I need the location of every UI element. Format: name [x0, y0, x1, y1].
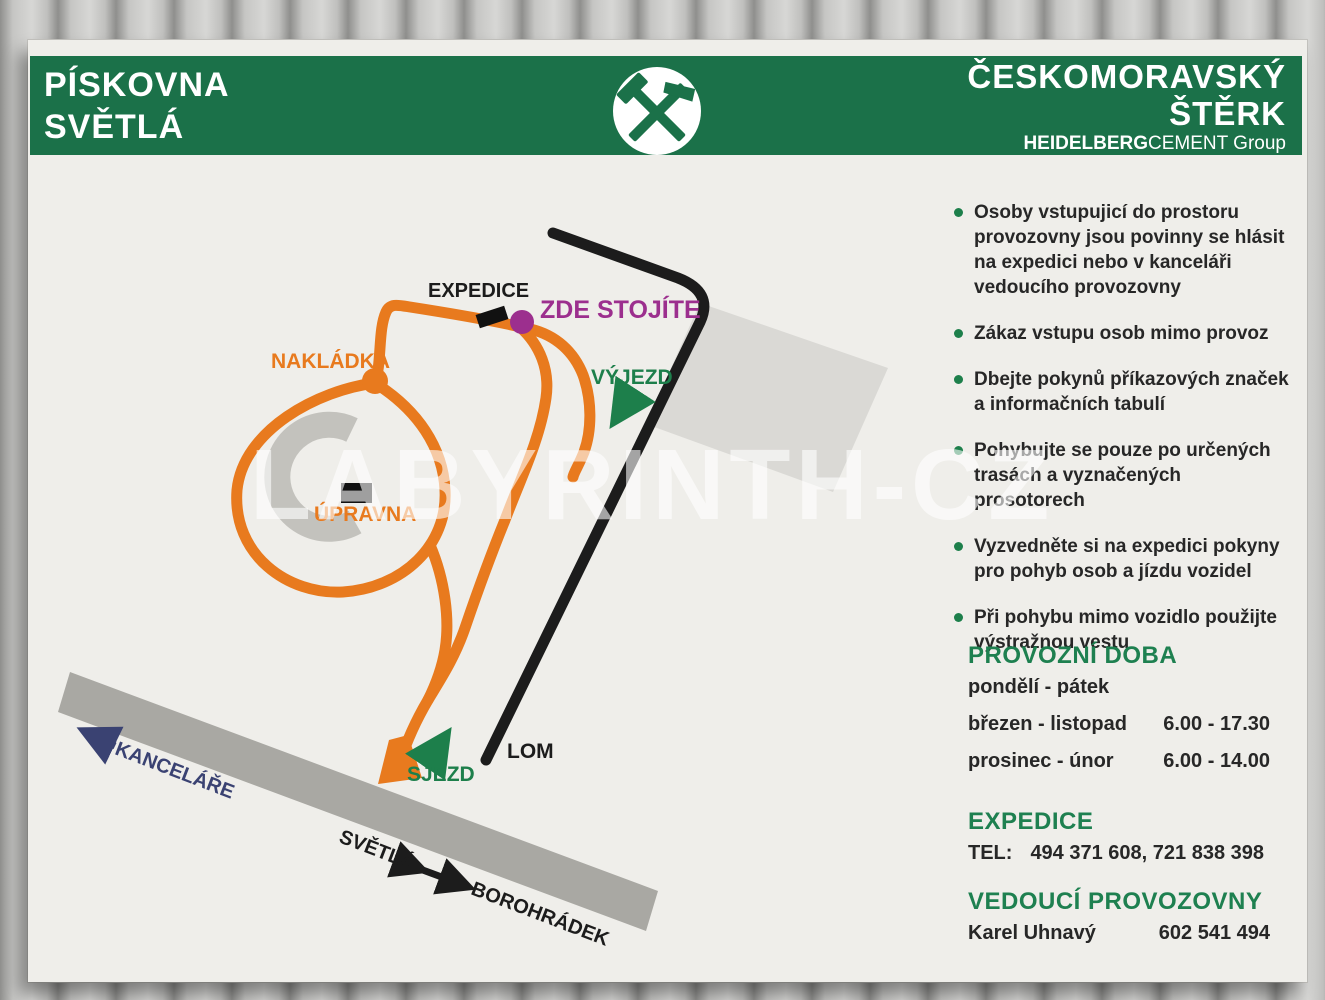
hours-row: březen - listopad 6.00 - 17.30 [968, 713, 1270, 736]
hours-time: 6.00 - 17.30 [1163, 713, 1270, 736]
label-sjezd: SJEZD [407, 763, 475, 787]
you-are-here-dot [510, 310, 534, 334]
upravna-marker [341, 483, 372, 503]
manager-title: VEDOUCÍ PROVOZOVNY [968, 888, 1288, 916]
label-zde-stojite: ZDE STOJÍTE [540, 296, 701, 325]
sign-panel: PÍSKOVNA SVĚTLÁ ČESKOMORAVSKÝ [28, 40, 1307, 982]
expedice-exit-road [375, 305, 590, 477]
direction-double-arrow-icon [420, 869, 466, 886]
hours-time: 6.00 - 14.00 [1163, 750, 1270, 773]
manager-phone: 602 541 494 [1159, 922, 1270, 945]
hours-row: prosinec - únor 6.00 - 14.00 [968, 750, 1270, 773]
manager-contact: Karel Uhnavý 602 541 494 [968, 922, 1270, 945]
through-road [398, 327, 547, 768]
expedice-phones: TEL:494 371 608, 721 838 398 [968, 842, 1288, 865]
manager-name: Karel Uhnavý [968, 922, 1096, 945]
kancelare-arrow-icon [86, 732, 115, 746]
label-vyjezd: VÝJEZD [591, 366, 673, 390]
hours-period: březen - listopad [968, 713, 1127, 736]
opening-hours-days: pondělí - pátek [968, 676, 1288, 699]
expedice-contact-section: EXPEDICE TEL:494 371 608, 721 838 398 [968, 808, 1288, 865]
label-expedice: EXPEDICE [428, 280, 529, 303]
rules-list: Osoby vstupujicí do prostoru provozovny … [952, 200, 1297, 655]
rule-item: Dbejte pokynů příkazových značek a infor… [952, 367, 1297, 417]
vyjezd-arrow-icon [616, 396, 631, 419]
building-area [646, 303, 888, 492]
opening-hours-section: PROVOZNÍ DOBA pondělí - pátek březen - l… [968, 642, 1288, 773]
expedice-title: EXPEDICE [968, 808, 1288, 836]
tel-numbers: 494 371 608, 721 838 398 [1030, 842, 1264, 864]
manager-section: VEDOUCÍ PROVOZOVNY Karel Uhnavý 602 541 … [968, 888, 1288, 945]
rule-item: Pohybujte se pouze po určených trasách a… [952, 438, 1297, 513]
main-road-band [58, 672, 658, 931]
label-nakladka: NAKLÁDKA [271, 350, 390, 374]
label-lom: LOM [507, 740, 554, 764]
rule-item: Vyzvedněte si na expedici pokyny pro poh… [952, 534, 1297, 584]
hours-period: prosinec - únor [968, 750, 1114, 773]
tel-label: TEL: [968, 842, 1012, 864]
opening-hours-title: PROVOZNÍ DOBA [968, 642, 1288, 670]
label-upravna: ÚPRAVNA [314, 503, 416, 527]
rule-item: Osoby vstupujicí do prostoru provozovny … [952, 200, 1297, 300]
rule-item: Zákaz vstupu osob mimo provoz [952, 321, 1297, 346]
